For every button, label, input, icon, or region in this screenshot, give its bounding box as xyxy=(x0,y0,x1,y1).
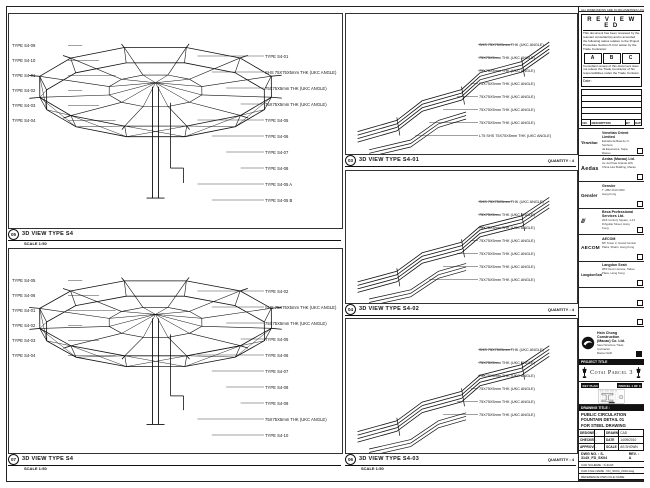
panel-3d-view-s4-03: SHS 75X75X5mm THK (UKC ANGLE)75X75X5mm T… xyxy=(345,318,578,454)
member-label: TYPE S4-05 A xyxy=(265,176,339,192)
lantern-icon xyxy=(636,367,641,379)
member-label: 75X75X5mm THK (UKC ANGLE) xyxy=(479,247,575,260)
member-label: SHS 75X75X5mm THK (UKC ANGLE) xyxy=(479,38,575,51)
view-number-bubble: 06 xyxy=(345,454,356,465)
member-label: SHS 75X75X5mm THK (UKC ANGLE) xyxy=(479,195,575,208)
member-label: 75X75X5mm THK (UKC ANGLE) xyxy=(479,273,575,286)
key-plan-label: KEY PLAN xyxy=(581,383,599,388)
langdon-seah-logo: LangdonSeah xyxy=(581,263,602,286)
member-label: TYPE S4-05 B xyxy=(265,192,339,208)
view-scale: SCALE 1:50 xyxy=(24,466,47,471)
field-value: 14/09/2010 xyxy=(619,437,644,444)
field-label: APPROVED xyxy=(579,444,595,451)
member-label: 75X75X5mm THK (UKC ANGLE) xyxy=(479,64,575,77)
member-label: TYPE S4-08 xyxy=(265,379,339,395)
member-label: 75X75X5mm THK (UKC ANGLE) xyxy=(479,234,575,247)
contractor-line: Steel Structure Trade Contractor xyxy=(597,343,633,351)
member-labels-right: TYPE S4-01SHS 75X75X5mm THK (UKC ANGLE)7… xyxy=(265,48,339,208)
view-footer: 03 3D VIEW TYPE S4-01 QUANTITY : 4 xyxy=(345,155,576,167)
title-block-spacer xyxy=(579,480,644,481)
reviewed-stamp-title: R E V I E W E D xyxy=(583,16,640,31)
view-title: 3D VIEW TYPE S4 xyxy=(22,456,73,462)
contractor-logo-icon xyxy=(581,336,595,350)
member-label: SHS 75X75X5mm THK (UKC ANGLE) xyxy=(265,64,339,80)
view-quantity: QUANTITY : 4 xyxy=(548,307,576,312)
member-label: TYPE S4-09 xyxy=(12,38,67,53)
consultant-row-aecom: AECOM AECOM 8/F Tower 2, Grand Central P… xyxy=(579,234,644,261)
member-label: 75X75X5mm THK (UKC ANGLE) xyxy=(479,90,575,103)
status-checkbox xyxy=(637,319,643,325)
status-checkbox xyxy=(637,148,643,154)
member-labels: SHS 75X75X5mm THK (UKC ANGLE)75X75X5mm T… xyxy=(479,38,575,142)
member-label: TYPE S4-06 xyxy=(265,128,339,144)
title-block: ALL DIMENSIONS ARE IN MILLIMETRES UNLESS… xyxy=(578,7,644,481)
panel-3d-view-s4-02: SHS 75X75X5mm THK (UKC ANGLE)75X75X5mm T… xyxy=(345,170,578,304)
view-title: 3D VIEW TYPE S4-01 xyxy=(359,157,419,163)
rev-col-no: NO. xyxy=(582,120,591,125)
field-label: CHECKED xyxy=(579,437,595,444)
member-label: TYPE S4-04 xyxy=(12,113,67,128)
contractor-name: Hsin Chong Construction (Macau) Co. Ltd. xyxy=(597,331,633,343)
member-label: 75X75X5mm THK (UKC ANGLE) xyxy=(265,411,339,427)
status-checkbox xyxy=(637,300,643,306)
contractor-line: Macau SAR xyxy=(597,351,633,355)
key-plan-header: KEY PLAN PARCEL 1 OF 3 xyxy=(579,382,644,389)
project-title-row: Cotai Parcel 3 xyxy=(579,365,644,382)
consultant-address: China Law Building, Macau xyxy=(602,165,636,169)
member-labels: SHS 75X75X5mm THK (UKC ANGLE)75X75X5mm T… xyxy=(479,195,575,286)
member-label: TYPE S4-03 xyxy=(12,98,67,113)
view-scale: SCALE 1:50 xyxy=(361,466,384,471)
view-title: 3D VIEW TYPE S4-03 xyxy=(359,456,419,462)
member-label: SHS 75X75X5mm THK (UKC ANGLE) xyxy=(479,343,575,356)
cad-info-rows: CAD SCHEME : S-314XCAD FILE NAME : FD_SK… xyxy=(579,462,644,480)
reviewed-stamp-disclaimer: Consultant review of this document does … xyxy=(583,65,640,77)
member-label: 75X75X5mm THK (UKC ANGLE) xyxy=(265,315,339,331)
view-scale: SCALE 1:50 xyxy=(24,241,47,246)
status-option-b: B xyxy=(603,53,621,64)
member-label: 75X75X5mm THK (UKC ANGLE) xyxy=(479,369,575,382)
field-label: DRAWN xyxy=(605,430,619,437)
stamp-date-line: Date : xyxy=(583,77,640,85)
drawing-sheet: TYPE S4-09TYPE S4-10TYPE S4-01TYPE S4-02… xyxy=(0,0,650,488)
panel-3d-view-s4-top: TYPE S4-09TYPE S4-10TYPE S4-01TYPE S4-02… xyxy=(8,13,343,229)
drawing-title-line: FOR STEEL DRAWING xyxy=(581,423,642,428)
view-number-bubble: 04 xyxy=(345,304,356,315)
consultant-address: da Esperanca, Taipa, Macau xyxy=(602,147,636,154)
beca-logo: /// xyxy=(581,210,602,233)
lantern-icon xyxy=(582,367,587,379)
member-label: TYPE S4-10 xyxy=(12,53,67,68)
revision-table: NO. DESCRIPTION BY DATE xyxy=(581,89,642,126)
contractor-block: Hsin Chong Construction (Macau) Co. Ltd.… xyxy=(579,326,644,359)
drawing-number: DWG NO. : S-314X_FD_SK04 xyxy=(581,452,629,460)
status-checkbox xyxy=(637,201,643,207)
reviewed-stamp-body: This document has been reviewed by the r… xyxy=(583,32,640,51)
panel-3d-view-s4-01: SHS 75X75X5mm THK (UKC ANGLE)75X75X5mm T… xyxy=(345,13,578,155)
view-number-bubble: 03 xyxy=(345,155,356,166)
member-label: L75 SHS 75X75X5mm THK (UKC ANGLE) xyxy=(479,129,575,142)
field-value: - xyxy=(595,430,605,437)
view-number-bubble: 07 xyxy=(8,454,19,465)
member-label: 75X75X5mm THK (UKC ANGLE) xyxy=(479,356,575,369)
gensler-logo: Gensler xyxy=(581,184,602,207)
member-label: TYPE S4-06 xyxy=(265,347,339,363)
member-label: TYPE S4-05 xyxy=(265,331,339,347)
approval-table: DESIGNED - DRAWN CAD CHECKED - DATE 14/0… xyxy=(579,429,644,451)
consultant-address: Plaza, Shatin, Hong Kong xyxy=(602,245,636,249)
revision-code: REV. : A xyxy=(629,452,642,460)
status-checkbox xyxy=(637,227,643,233)
member-label: TYPE S4-04 xyxy=(12,348,67,363)
status-option-a: A xyxy=(584,53,602,64)
field-value: - xyxy=(595,444,605,451)
member-label: TYPE S4-08 xyxy=(265,160,339,176)
drawing-number-row: DWG NO. : S-314X_FD_SK04 REV. : A xyxy=(579,451,644,462)
member-label: 75X75X5mm THK (UKC ANGLE) xyxy=(479,408,575,421)
parcel-label: PARCEL 1 OF 3 xyxy=(617,383,642,388)
project-name: Cotai Parcel 3 xyxy=(590,370,633,376)
consultant-name: Beca Professional Services Ltd. xyxy=(602,210,636,218)
member-labels-left: TYPE S4-05TYPE S4-06TYPE S4-01TYPE S4-02… xyxy=(12,273,67,363)
consultant-address: D'Aguilar Street, Hong Kong xyxy=(602,222,636,230)
status-checkbox xyxy=(637,280,643,286)
member-label: TYPE S4-07 xyxy=(265,144,339,160)
venetian-logo: Venetian xyxy=(581,131,602,154)
status-checkbox xyxy=(637,254,643,260)
aecom-logo: AECOM xyxy=(581,237,602,260)
consultant-row-gensler: Gensler Gensler T +852 2110 2000 Hong Ko… xyxy=(579,181,644,208)
aedas-logo: Aedas xyxy=(581,157,602,180)
member-label: 75X75X5mm THK (UKC ANGLE) xyxy=(479,208,575,221)
rev-col-date: DATE xyxy=(635,120,641,125)
view-number-bubble: 05 xyxy=(8,229,19,240)
member-label: TYPE S4-09 xyxy=(265,395,339,411)
rev-col-by: BY xyxy=(626,120,635,125)
reviewed-stamp: R E V I E W E D This document has been r… xyxy=(581,14,642,87)
member-label: 75X75X5mm THK (UKC ANGLE) xyxy=(479,260,575,273)
consultant-address: Estrada da Baia de N. Senhora xyxy=(602,139,636,147)
member-label: TYPE S4-05 xyxy=(265,112,339,128)
member-label: TYPE S4-02 xyxy=(12,318,67,333)
member-labels-right: TYPE S4-02SHS 75X75X5mm THK (UKC ANGLE)7… xyxy=(265,283,339,443)
member-label: TYPE S4-02 xyxy=(265,283,339,299)
member-label: 75X75X5mm THK (UKC ANGLE) xyxy=(479,221,575,234)
key-plan-drawing xyxy=(579,389,644,405)
member-labels-left: TYPE S4-09TYPE S4-10TYPE S4-01TYPE S4-02… xyxy=(12,38,67,128)
member-label: TYPE S4-03 xyxy=(12,333,67,348)
view-footer: 05 3D VIEW TYPE S4 xyxy=(8,229,341,241)
consultant-row-empty xyxy=(579,307,644,327)
member-label: SHS 75X75X5mm THK (UKC ANGLE) xyxy=(265,299,339,315)
member-label: 75X75X5mm THK (UKC ANGLE) xyxy=(479,116,575,129)
member-label: TYPE S4-10 xyxy=(265,427,339,443)
member-label: 75X75X5mm THK (UKC ANGLE) xyxy=(265,80,339,96)
member-label: 75X75X5mm THK (UKC ANGLE) xyxy=(479,103,575,116)
drawing-title: PUBLIC CIRCULATION FOUNTAIN DETAIL 01 FO… xyxy=(579,411,644,429)
revision-table-header: NO. DESCRIPTION BY DATE xyxy=(582,120,641,125)
consultant-row-aedas: Aedas Aedas (Macau) Ltd. Av. da Praia Gr… xyxy=(579,155,644,182)
member-label: TYPE S4-01 xyxy=(265,48,339,64)
member-label: 75X75X5mm THK (UKC ANGLE) xyxy=(479,382,575,395)
member-label: TYPE S4-01 xyxy=(12,68,67,83)
field-label: DATE xyxy=(605,437,619,444)
member-label: TYPE S4-07 xyxy=(265,363,339,379)
view-quantity: QUANTITY : 4 xyxy=(548,457,576,462)
view-footer: 04 3D VIEW TYPE S4-02 QUANTITY : 4 xyxy=(345,304,576,316)
view-title: 3D VIEW TYPE S4 xyxy=(22,231,73,237)
view-title: 3D VIEW TYPE S4-02 xyxy=(359,306,419,312)
field-value: AS SHOWN xyxy=(619,444,644,451)
rev-col-description: DESCRIPTION xyxy=(591,120,625,125)
status-option-c: C xyxy=(622,53,640,64)
view-footer: 06 3D VIEW TYPE S4-03 QUANTITY : 4 xyxy=(345,454,576,466)
member-label: 75X75X5mm THK (UKC ANGLE) xyxy=(479,395,575,408)
member-label: TYPE S4-02 xyxy=(12,83,67,98)
member-labels: SHS 75X75X5mm THK (UKC ANGLE)75X75X5mm T… xyxy=(479,343,575,421)
field-value: CAD xyxy=(619,430,644,437)
member-label: 75X75X5mm THK (UKC ANGLE) xyxy=(265,96,339,112)
consultant-name: Venetian Orient Limited xyxy=(602,131,636,139)
consultant-row-beca: /// Beca Professional Services Ltd. 20/F… xyxy=(579,208,644,235)
field-label: DESIGNED xyxy=(579,430,595,437)
field-value: - xyxy=(595,437,605,444)
consultant-row-venetian: Venetian Venetian Orient Limited Estrada… xyxy=(579,128,644,155)
consultant-address: Place, Hong Kong xyxy=(602,271,636,275)
consultant-address: Hong Kong xyxy=(602,192,636,196)
member-label: TYPE S4-01 xyxy=(12,303,67,318)
field-label: SCALE xyxy=(605,444,619,451)
view-quantity: QUANTITY : 4 xyxy=(548,158,576,163)
consultant-row-langdon-seah: LangdonSeah Langdon Seah 28/F Devon Hous… xyxy=(579,261,644,288)
general-note: ALL DIMENSIONS ARE IN MILLIMETRES UNLESS… xyxy=(579,7,644,12)
status-checkbox xyxy=(636,351,642,357)
member-label: TYPE S4-05 xyxy=(12,273,67,288)
status-checkbox xyxy=(637,174,643,180)
member-label: TYPE S4-06 xyxy=(12,288,67,303)
review-status-options: A B C xyxy=(583,53,640,64)
panel-3d-view-s4-bottom: TYPE S4-05TYPE S4-06TYPE S4-01TYPE S4-02… xyxy=(8,248,343,454)
member-label: 75X75X5mm THK (UKC ANGLE) xyxy=(479,51,575,64)
view-footer: 07 3D VIEW TYPE S4 xyxy=(8,454,341,466)
consultant-row-empty xyxy=(579,287,644,307)
member-label: 75X75X5mm THK (UKC ANGLE) xyxy=(479,77,575,90)
